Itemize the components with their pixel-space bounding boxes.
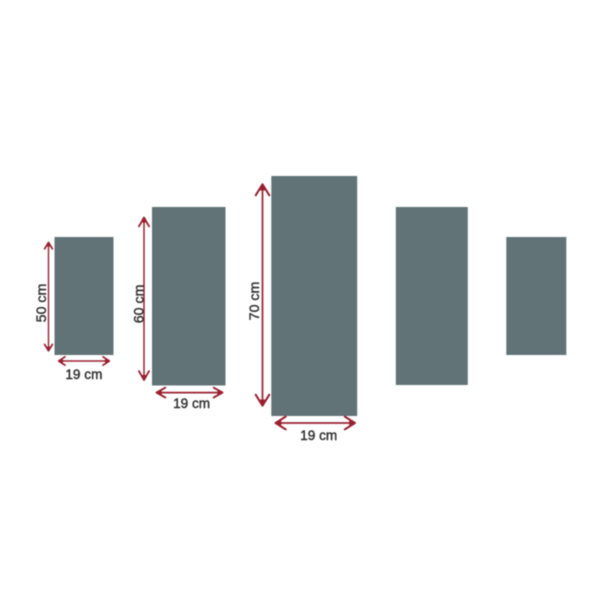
svg-text:19 cm: 19 cm [173,396,210,411]
svg-text:19 cm: 19 cm [65,367,102,382]
svg-text:60 cm: 60 cm [132,285,148,324]
svg-text:19 cm: 19 cm [300,428,337,443]
svg-text:70 cm: 70 cm [247,282,263,321]
svg-text:50 cm: 50 cm [34,284,50,323]
